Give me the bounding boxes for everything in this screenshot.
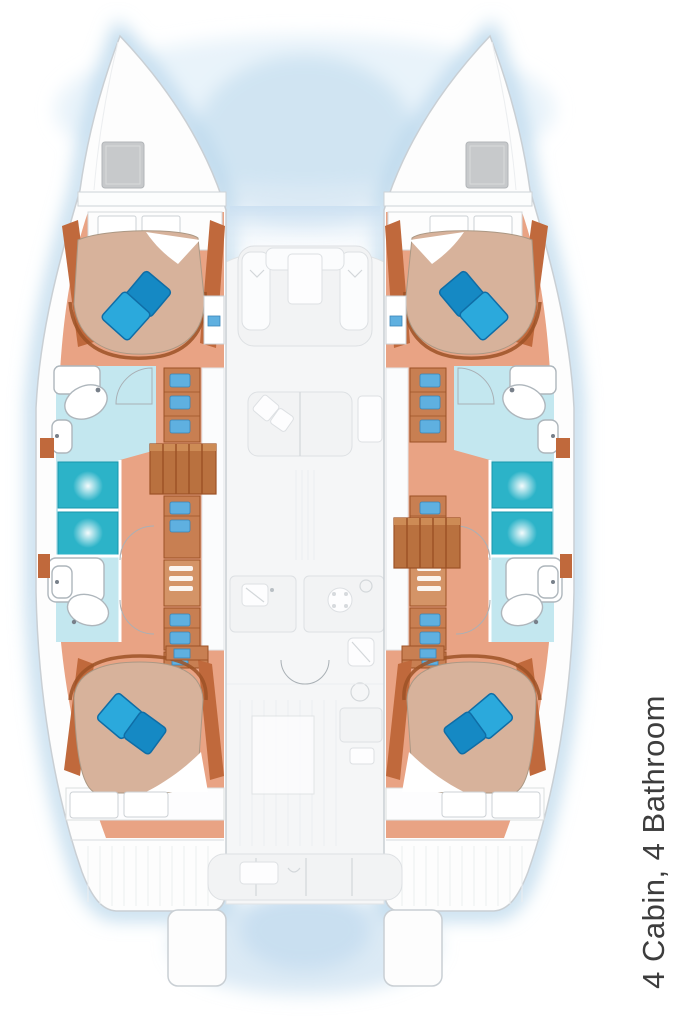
salon-table (288, 254, 322, 304)
companionway-stairs-port (150, 444, 216, 494)
nav-station (340, 708, 382, 742)
bridge-deck (226, 206, 384, 904)
floor-plan-canvas: 4 Cabin, 4 Bathroom (0, 0, 683, 1024)
companionway-stairs-starboard (394, 518, 460, 568)
nav-seat (350, 748, 374, 764)
plan-caption: 4 Cabin, 4 Bathroom (636, 695, 671, 989)
bench-table (240, 862, 278, 884)
catamaran-floor-plan: 4 Cabin, 4 Bathroom (0, 0, 683, 1024)
cockpit-bench (208, 854, 402, 900)
side-table (358, 396, 382, 442)
cooktop-icon (328, 588, 352, 612)
cockpit-table (252, 716, 314, 794)
faucet-icon (270, 588, 274, 592)
